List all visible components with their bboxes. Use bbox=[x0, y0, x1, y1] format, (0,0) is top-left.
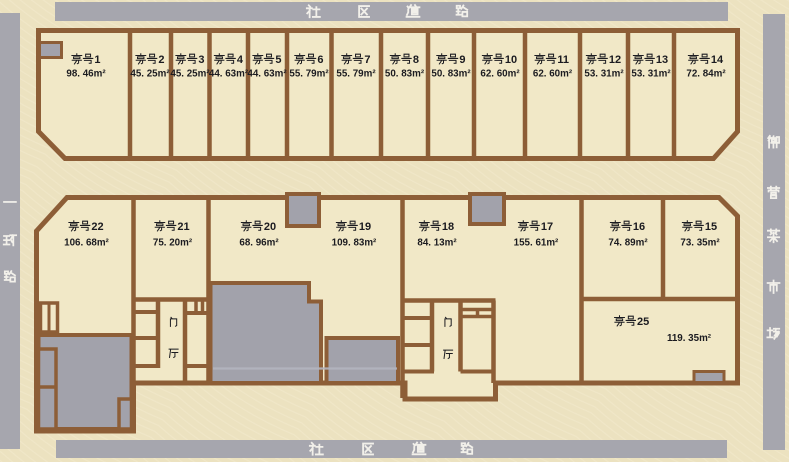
svg-text:119. 35m²: 119. 35m² bbox=[667, 333, 712, 344]
svg-text:106. 68m²: 106. 68m² bbox=[64, 238, 109, 249]
svg-text:1: 1 bbox=[94, 54, 100, 66]
svg-text:19: 19 bbox=[359, 221, 371, 233]
svg-text:22: 22 bbox=[91, 221, 103, 233]
svg-text:75. 20m²: 75. 20m² bbox=[153, 238, 193, 249]
svg-text:55. 79m²: 55. 79m² bbox=[336, 69, 376, 80]
svg-text:18: 18 bbox=[442, 221, 454, 233]
svg-text:25: 25 bbox=[637, 316, 649, 328]
svg-text:62. 60m²: 62. 60m² bbox=[533, 69, 573, 80]
svg-text:13: 13 bbox=[656, 54, 668, 66]
svg-text:72. 84m²: 72. 84m² bbox=[686, 69, 726, 80]
svg-text:84. 13m²: 84. 13m² bbox=[417, 238, 457, 249]
svg-text:9: 9 bbox=[459, 54, 465, 66]
svg-text:2: 2 bbox=[158, 54, 164, 66]
svg-text:44. 63m²: 44. 63m² bbox=[247, 69, 287, 80]
svg-text:17: 17 bbox=[541, 221, 553, 233]
svg-text:50. 83m²: 50. 83m² bbox=[431, 69, 471, 80]
svg-text:4: 4 bbox=[237, 54, 244, 66]
svg-text:50. 83m²: 50. 83m² bbox=[385, 69, 425, 80]
svg-text:62. 60m²: 62. 60m² bbox=[480, 69, 520, 80]
svg-text:155. 61m²: 155. 61m² bbox=[514, 238, 559, 249]
svg-text:20: 20 bbox=[264, 221, 276, 233]
svg-text:55. 79m²: 55. 79m² bbox=[289, 69, 329, 80]
svg-text:21: 21 bbox=[177, 221, 189, 233]
svg-text:3: 3 bbox=[198, 54, 204, 66]
svg-text:45. 25m²: 45. 25m² bbox=[130, 69, 170, 80]
svg-text:45. 25m²: 45. 25m² bbox=[170, 69, 210, 80]
svg-text:74. 89m²: 74. 89m² bbox=[608, 238, 648, 249]
svg-text:8: 8 bbox=[413, 54, 419, 66]
svg-text:6: 6 bbox=[317, 54, 323, 66]
svg-text:11: 11 bbox=[557, 54, 569, 66]
svg-text:73. 35m²: 73. 35m² bbox=[680, 238, 720, 249]
svg-text:53. 31m²: 53. 31m² bbox=[584, 69, 624, 80]
svg-text:16: 16 bbox=[633, 221, 645, 233]
svg-text:7: 7 bbox=[364, 54, 370, 66]
svg-text:109. 83m²: 109. 83m² bbox=[332, 238, 377, 249]
svg-text:12: 12 bbox=[609, 54, 621, 66]
svg-text:15: 15 bbox=[705, 221, 717, 233]
svg-text:98. 46m²: 98. 46m² bbox=[66, 69, 106, 80]
svg-text:5: 5 bbox=[275, 54, 281, 66]
svg-text:44. 63m²: 44. 63m² bbox=[209, 69, 249, 80]
svg-text:14: 14 bbox=[711, 54, 724, 66]
svg-text:10: 10 bbox=[505, 54, 517, 66]
svg-text:53. 31m²: 53. 31m² bbox=[631, 69, 671, 80]
svg-text:68. 96m²: 68. 96m² bbox=[239, 238, 279, 249]
